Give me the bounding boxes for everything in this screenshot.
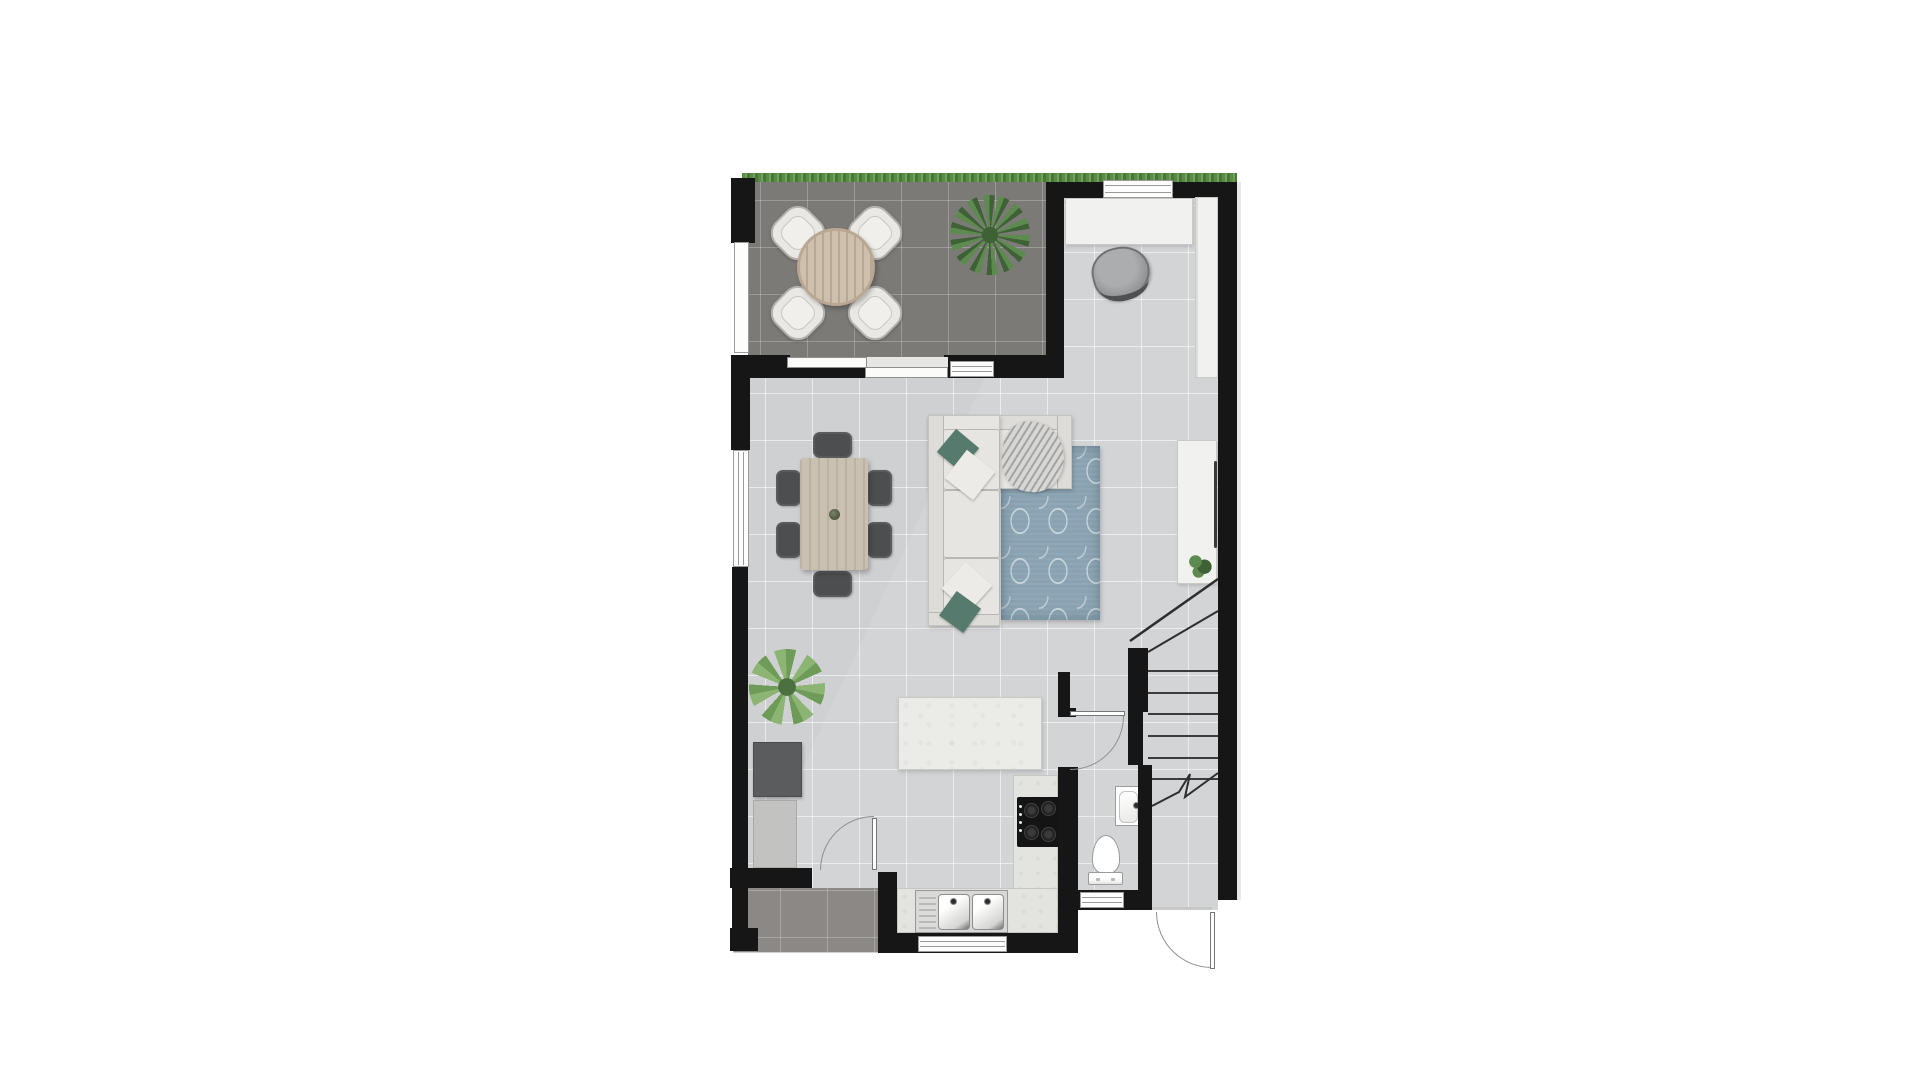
entry-threshold bbox=[1152, 907, 1212, 910]
sideboard-plant bbox=[1185, 548, 1215, 582]
floor-plan-canvas bbox=[0, 0, 1920, 1080]
wall bbox=[1058, 767, 1078, 953]
stair-newel-post bbox=[1128, 648, 1148, 712]
burner-icon bbox=[1024, 825, 1039, 840]
wall bbox=[1058, 672, 1070, 708]
sliding-door-panel-inner bbox=[865, 367, 948, 378]
wall bbox=[1048, 182, 1103, 198]
dining-chair bbox=[813, 432, 852, 458]
front-door-swing-arc bbox=[1156, 912, 1212, 968]
wc-window bbox=[1080, 892, 1124, 908]
outer-wall-edge bbox=[1237, 182, 1241, 900]
faucet-icon bbox=[984, 898, 991, 905]
stair-tread bbox=[1148, 757, 1218, 759]
wall bbox=[732, 355, 790, 378]
dining-chair bbox=[867, 470, 892, 506]
wall bbox=[1173, 182, 1237, 198]
terrace-wall-window bbox=[950, 361, 994, 377]
front-door-leaf bbox=[1210, 912, 1215, 969]
sink-drainboard bbox=[919, 895, 936, 929]
wall bbox=[1218, 198, 1237, 900]
entry-tall-cabinet bbox=[1195, 197, 1218, 378]
stair-tread bbox=[1148, 735, 1218, 737]
kitchen-dark-cabinet bbox=[753, 742, 802, 797]
wall bbox=[730, 868, 812, 888]
terrace-round-table bbox=[797, 228, 875, 306]
toilet-bowl bbox=[1092, 835, 1120, 874]
entry-window bbox=[1103, 180, 1173, 198]
dining-chair bbox=[776, 470, 801, 506]
wall bbox=[731, 178, 755, 243]
sofa-seat-cushion bbox=[943, 490, 1000, 558]
sideboard-handle bbox=[1214, 461, 1217, 548]
kitchen-island bbox=[898, 697, 1042, 770]
wall bbox=[787, 368, 867, 378]
kitchen-sink-unit bbox=[915, 890, 1008, 933]
terrace-side-opening bbox=[734, 242, 749, 353]
flush-button bbox=[1096, 878, 1100, 881]
flush-button bbox=[1111, 878, 1115, 881]
entry-closet bbox=[1065, 198, 1193, 245]
floor-plan bbox=[730, 173, 1245, 973]
wall bbox=[1046, 182, 1064, 378]
dining-chair bbox=[813, 571, 852, 597]
living-room-window bbox=[733, 450, 749, 567]
dining-chair bbox=[867, 522, 892, 558]
faucet-icon bbox=[950, 898, 957, 905]
sliding-door-track bbox=[865, 357, 948, 367]
cooktop bbox=[1017, 797, 1060, 847]
toilet-cistern bbox=[1088, 872, 1123, 885]
patio-door-leaf bbox=[872, 818, 877, 870]
wall bbox=[878, 872, 897, 953]
cooktop-knob bbox=[1019, 821, 1022, 824]
kitchen-low-cabinet bbox=[753, 800, 797, 868]
burner-icon bbox=[1024, 803, 1039, 818]
stair-tread bbox=[1148, 713, 1218, 715]
burner-icon bbox=[1041, 801, 1056, 816]
cooktop-knob bbox=[1019, 813, 1022, 816]
table-centerpiece bbox=[829, 509, 840, 520]
stair-tread bbox=[1148, 778, 1218, 780]
stair-post bbox=[1128, 712, 1143, 765]
stair-tread bbox=[1148, 670, 1218, 672]
sliding-door-panel-outer bbox=[787, 357, 867, 368]
wall bbox=[730, 928, 758, 951]
wall bbox=[1138, 765, 1152, 910]
stair-tread bbox=[1148, 692, 1218, 694]
dining-chair bbox=[776, 522, 801, 558]
cooktop-knob bbox=[1019, 805, 1022, 808]
cooktop-knob bbox=[1019, 829, 1022, 832]
burner-icon bbox=[1041, 827, 1056, 842]
kitchen-window bbox=[918, 936, 1007, 952]
